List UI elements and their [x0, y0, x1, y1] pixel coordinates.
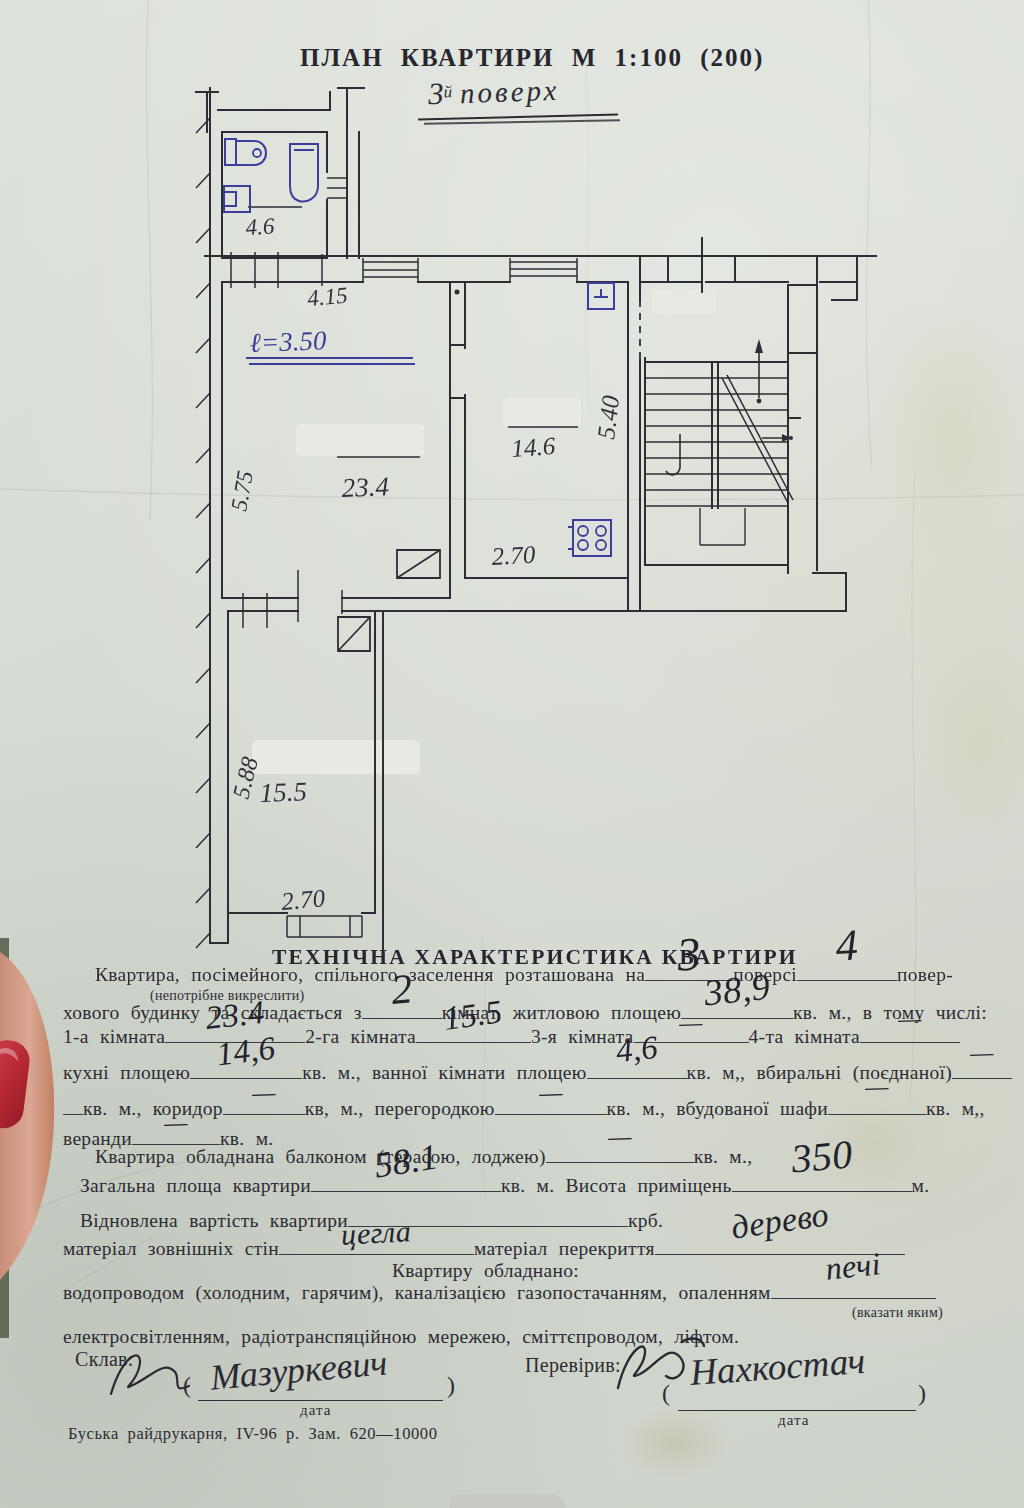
handwritten-rooms-count: 2 — [389, 967, 414, 1011]
handwritten-total-area: 58.1 — [371, 1138, 440, 1184]
handwritten-dash: — — [538, 1080, 562, 1107]
printed-text: 4-та кімната — [749, 1026, 860, 1047]
printing-house-line: Буська райдрукарня, ІV-96 р. Зам. 620—10… — [68, 1424, 438, 1444]
tech-line-10: матеріал зовнішніх стінцегламатеріал пер… — [63, 1238, 905, 1260]
paper-tear — [450, 1494, 565, 1508]
printed-text: Квартира обладнана балконом (терасою, ло… — [95, 1146, 546, 1167]
blank-field: — — [952, 1063, 1012, 1079]
plan-dot — [757, 399, 762, 404]
tech-line-11: Квартиру обладнано: — [392, 1260, 579, 1282]
blank-field: 350 — [732, 1176, 912, 1192]
blank-field: 4 — [797, 965, 897, 981]
handwritten-floor: 3 — [676, 930, 703, 979]
direction-arrows — [666, 350, 784, 475]
printed-text: м. — [912, 1175, 930, 1196]
printed-text: Квартиру обладнано: — [392, 1260, 579, 1281]
printed-text: кв. м,, — [926, 1098, 985, 1119]
dim-bath-area: 4.6 — [245, 213, 276, 239]
height-note-underline — [246, 358, 415, 364]
handwritten-bath-area: 4,6 — [614, 1031, 659, 1068]
blank-field: — — [495, 1099, 607, 1115]
dim-room2-left: 5.88 — [228, 754, 263, 801]
plan-dot — [789, 436, 793, 440]
blank-field: — — [828, 1099, 926, 1115]
signature-line — [678, 1408, 916, 1411]
handwritten-living-area: 38,9 — [702, 968, 771, 1012]
bracket: ) — [447, 1372, 455, 1399]
printed-text: 2-га кімната — [305, 1026, 416, 1047]
printed-text: повер- — [897, 964, 953, 985]
tech-line-8: Загальна площа квартири58.1кв. м. Висота… — [80, 1175, 929, 1197]
blank-field: цегла — [279, 1239, 474, 1255]
printed-text: матеріал перекриття — [474, 1238, 655, 1259]
tech-line-1: Квартира, посімейного, спільного заселен… — [95, 964, 953, 986]
dim-room1-left: 5.75 — [226, 469, 258, 513]
handwritten-dash: — — [679, 1010, 703, 1037]
handwritten-dash: — — [252, 1080, 276, 1107]
blank-field: — — [860, 1027, 960, 1043]
blank-field: — — [132, 1129, 220, 1145]
site-boundary-hatching — [196, 118, 210, 948]
area-kitchen: 14.6 — [510, 432, 556, 462]
bracket: ) — [918, 1380, 926, 1407]
bracket: ( — [183, 1372, 191, 1399]
checked-by-label: Перевірив: — [525, 1354, 621, 1377]
printed-text: кв. м,, вбиральні (поєднаної) — [687, 1062, 953, 1083]
printed-text: Перевірив: — [525, 1354, 621, 1376]
dim-room2-bottom: 2.70 — [280, 884, 326, 915]
printed-text: матеріал зовнішніх стін — [63, 1238, 279, 1259]
tech-line-5: кв. м., коридор—кв, м., перегородкою—кв.… — [63, 1098, 985, 1120]
tech-line-12: водопроводом (холодним, гарячим), каналі… — [63, 1282, 936, 1304]
handwritten-room2-area: 15.5 — [442, 995, 505, 1036]
signature-line — [198, 1398, 443, 1401]
printed-text: кв, м., перегородкою — [305, 1098, 495, 1119]
printed-text: кв. м., вбудованої шафи — [607, 1098, 828, 1119]
tech-line-2: хового будинку та складається з2кімнат, … — [63, 1002, 987, 1024]
stove-symbol — [568, 520, 611, 556]
date-label: дата — [300, 1402, 331, 1419]
handwritten-dash: — — [865, 1074, 889, 1101]
blank-field: 2 — [362, 1003, 442, 1019]
blank-field: печі — [771, 1283, 936, 1299]
height-note: ℓ=3.50 — [249, 325, 327, 358]
bracket: ( — [662, 1380, 670, 1407]
vent-shaft-symbol — [338, 550, 440, 651]
floor-plan: 4.6 4.15 5.75 ℓ=3.50 23.4 14.6 5.40 2.70… — [0, 0, 1024, 950]
bath-fixtures — [224, 139, 318, 212]
blank-field: 58.1 — [311, 1176, 501, 1192]
handwritten-wall-material: цегла — [341, 1216, 413, 1250]
area-room1: 23.4 — [341, 471, 389, 503]
area-room2: 15.5 — [259, 776, 307, 808]
date-label: дата — [778, 1412, 809, 1429]
dim-room1-top: 4.15 — [306, 283, 348, 311]
blank-field: — — [223, 1099, 305, 1115]
blank-field: 14,6 — [190, 1063, 302, 1079]
handwritten-room1-area: 23.4 — [204, 996, 266, 1035]
walls — [196, 88, 876, 950]
thumb-holding-paper — [0, 930, 90, 1360]
handwritten-dash: — — [970, 1040, 994, 1067]
printed-text: водопроводом (холодним, гарячим), каналі… — [63, 1282, 771, 1303]
sink-symbol — [588, 283, 614, 309]
photographed-document: ПЛАН КВАРТИРИ М 1:100 (200) 3йповерх — [0, 0, 1024, 1508]
specify-note: (вказати яким) — [852, 1305, 943, 1321]
printed-text: крб. — [628, 1210, 663, 1231]
dim-kitchen-right: 5.40 — [592, 393, 624, 440]
tech-line-3: 1-а кімната23.42-га кімната15.53-я кімна… — [63, 1026, 960, 1048]
blank-field: 4,6 — [587, 1063, 687, 1079]
handwritten-heating: печі — [824, 1247, 882, 1285]
printed-text: кв. м. Висота приміщень — [501, 1175, 732, 1196]
blank-field: — — [546, 1147, 694, 1163]
printed-text: кв. м., в тому числі: — [793, 1002, 987, 1023]
printed-text: Загальна площа квартири — [80, 1175, 311, 1196]
plan-dot — [455, 290, 460, 295]
printed-text: Квартира, посімейного, спільного заселен… — [95, 964, 645, 985]
printed-text: кв. м., — [694, 1146, 753, 1167]
blank-field: 15.5 — [416, 1027, 531, 1043]
handwritten-floors-total: 4 — [835, 923, 860, 968]
printed-text: кв. м., коридор — [83, 1098, 223, 1119]
printed-text: Відновлена вартість квартири — [80, 1210, 348, 1231]
handwritten-dash: — — [608, 1124, 632, 1151]
handwritten-dash: — — [164, 1110, 188, 1137]
handwritten-dash: — — [898, 1006, 922, 1033]
handwritten-kitchen-area: 14,6 — [215, 1032, 278, 1072]
arrow-head-up — [755, 339, 763, 353]
handwritten-ceiling-height: 350 — [790, 1134, 854, 1179]
dim-kitchen-bottom: 2.70 — [491, 541, 537, 570]
